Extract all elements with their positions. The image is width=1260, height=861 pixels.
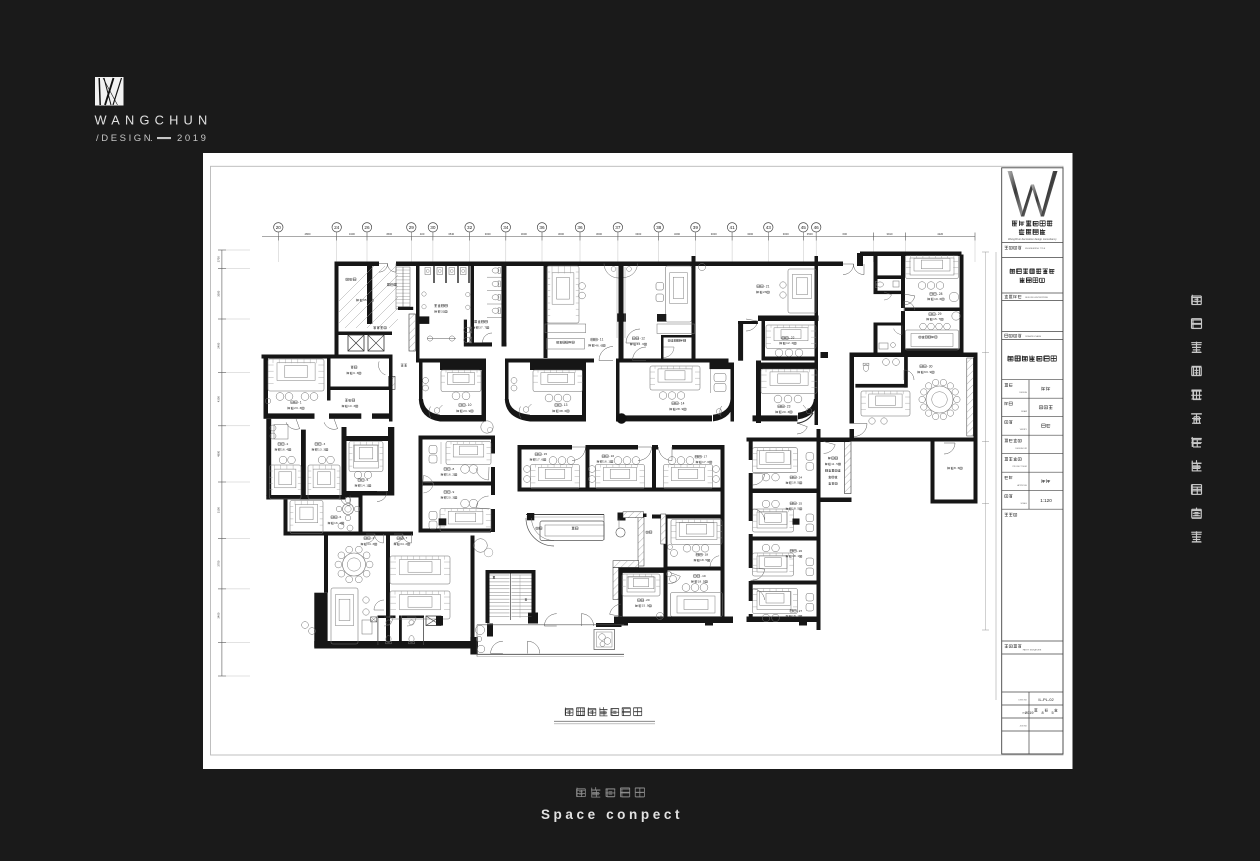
svg-text:6: 6 — [340, 515, 342, 519]
svg-text:8: 8 — [1041, 711, 1043, 715]
svg-text:3000: 3000 — [783, 232, 789, 236]
svg-text:24: 24 — [334, 225, 340, 230]
svg-text:26: 26 — [364, 225, 370, 230]
svg-text:Space conpect: Space conpect — [541, 807, 683, 822]
svg-text:6: 6 — [800, 549, 802, 553]
svg-text:3000: 3000 — [711, 232, 717, 236]
svg-text:1: 1 — [602, 338, 604, 342]
svg-text:43: 43 — [766, 225, 772, 230]
svg-text:0: 0 — [648, 598, 650, 602]
svg-text:5: 5 — [545, 452, 547, 456]
svg-text:8: 8 — [941, 292, 943, 296]
svg-text:3500: 3500 — [807, 232, 813, 236]
svg-text:32: 32 — [467, 225, 473, 230]
svg-text:3400: 3400 — [217, 612, 221, 618]
svg-text:3: 3 — [324, 442, 326, 446]
svg-text:9: 9 — [704, 574, 706, 578]
svg-text:DWG NO: DWG NO — [1019, 700, 1028, 702]
svg-text:36: 36 — [539, 225, 545, 230]
svg-text:20: 20 — [276, 225, 282, 230]
svg-text:5: 5 — [1051, 711, 1053, 715]
svg-text:2: 2 — [793, 336, 795, 340]
svg-text:3000: 3000 — [596, 232, 602, 236]
svg-text:4800: 4800 — [217, 450, 221, 456]
svg-text:2: 2 — [643, 336, 645, 340]
svg-text:APPROVE: APPROVE — [1017, 484, 1027, 487]
svg-text:5: 5 — [800, 501, 802, 505]
svg-text:3000: 3000 — [747, 232, 753, 236]
svg-text:45: 45 — [801, 225, 807, 230]
svg-text:4: 4 — [683, 401, 685, 405]
svg-text:1: 1 — [300, 400, 302, 404]
svg-text:3: 3 — [789, 404, 791, 408]
svg-text:3290: 3290 — [674, 232, 680, 236]
svg-text:3000: 3000 — [521, 232, 527, 236]
svg-text:3000: 3000 — [217, 290, 221, 296]
svg-text:4860: 4860 — [305, 232, 311, 236]
svg-text:DESIGN DIR: DESIGN DIR — [1015, 448, 1027, 450]
svg-text:4: 4 — [800, 475, 802, 479]
svg-text:5100: 5100 — [217, 507, 221, 513]
svg-text:WangChun decoration design con: WangChun decoration design consultancy — [1008, 237, 1057, 241]
svg-text:39: 39 — [693, 225, 699, 230]
svg-text:0: 0 — [931, 364, 933, 368]
svg-text:2400: 2400 — [217, 342, 221, 348]
svg-text:IL-PL-02: IL-PL-02 — [1038, 697, 1054, 702]
svg-text:3: 3 — [566, 403, 568, 407]
svg-text:2019: 2019 — [177, 133, 209, 144]
svg-text:DRAWING NAME: DRAWING NAME — [1025, 335, 1042, 338]
svg-text:9: 9 — [453, 490, 455, 494]
svg-text:3300: 3300 — [635, 232, 641, 236]
svg-text:8: 8 — [453, 467, 455, 471]
svg-text:PARTY SIGNATURE: PARTY SIGNATURE — [1023, 649, 1042, 652]
svg-text:VERIFY: VERIFY — [1020, 429, 1028, 431]
svg-text:ENGINEERING TITLE: ENGINEERING TITLE — [1025, 248, 1046, 250]
svg-text:2019: 2019 — [1025, 711, 1033, 715]
svg-text:.: . — [150, 133, 153, 144]
svg-text:9: 9 — [940, 312, 942, 316]
svg-text:BUILDING ENTERPRISE: BUILDING ENTERPRISE — [1025, 297, 1048, 299]
svg-text:36: 36 — [577, 225, 583, 230]
svg-text:8: 8 — [706, 553, 708, 557]
svg-text:JOB NO: JOB NO — [1020, 726, 1028, 728]
svg-text:3000: 3000 — [558, 232, 564, 236]
svg-text:1:120: 1:120 — [1040, 498, 1052, 503]
svg-text:3540: 3540 — [448, 232, 454, 236]
svg-text:2: 2 — [287, 442, 289, 446]
svg-text:3000: 3000 — [485, 232, 491, 236]
svg-text:3910: 3910 — [887, 232, 893, 236]
svg-text:46: 46 — [814, 225, 820, 230]
svg-text:WANGCHUN: WANGCHUN — [95, 113, 213, 128]
svg-text:7: 7 — [705, 455, 707, 459]
svg-text:5: 5 — [367, 478, 369, 482]
svg-text:4220: 4220 — [937, 232, 943, 236]
svg-text:400: 400 — [420, 232, 425, 236]
svg-text:30: 30 — [430, 225, 436, 230]
svg-text:0: 0 — [470, 403, 472, 407]
svg-text:7: 7 — [800, 609, 802, 613]
svg-text:38: 38 — [656, 225, 662, 230]
svg-text:DESIGN: DESIGN — [1019, 392, 1027, 394]
svg-text:6: 6 — [612, 454, 614, 458]
svg-text:4: 4 — [373, 536, 375, 540]
svg-text:1: 1 — [768, 284, 770, 288]
svg-text:7: 7 — [369, 298, 371, 302]
svg-text:4500: 4500 — [386, 232, 392, 236]
svg-text:4300: 4300 — [217, 396, 221, 402]
svg-text:41: 41 — [729, 225, 735, 230]
svg-text:7: 7 — [406, 536, 408, 540]
svg-text:37: 37 — [615, 225, 621, 230]
svg-text:PROJECT MGR: PROJECT MGR — [1012, 466, 1027, 468]
svg-text:SCALE: SCALE — [1020, 502, 1027, 505]
svg-text:600: 600 — [843, 232, 848, 236]
svg-text:3700: 3700 — [217, 256, 221, 262]
svg-text:3400: 3400 — [349, 232, 355, 236]
svg-text:3700: 3700 — [217, 560, 221, 566]
svg-text:DRAW: DRAW — [1021, 410, 1027, 413]
svg-text:29: 29 — [409, 225, 415, 230]
svg-text:34: 34 — [503, 225, 509, 230]
svg-text:/DESIGN: /DESIGN — [96, 133, 153, 144]
